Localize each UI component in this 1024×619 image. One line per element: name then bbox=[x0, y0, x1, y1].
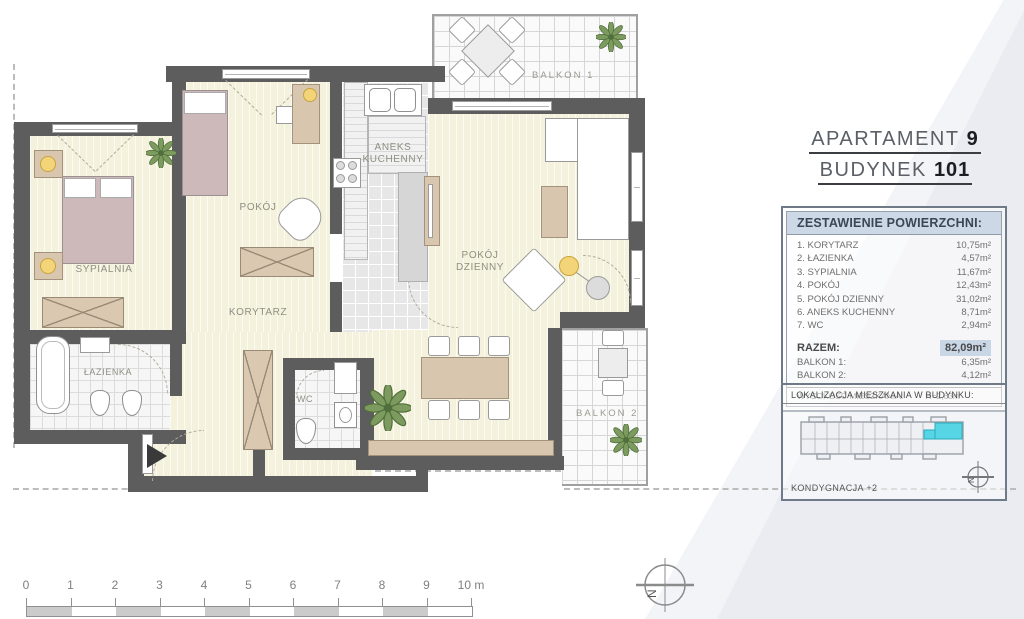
scale-tick bbox=[204, 598, 205, 606]
area-table-title: ZESTAWIENIE POWIERZCHNI: bbox=[787, 212, 1001, 235]
bathtub bbox=[36, 336, 70, 414]
north-compass-icon: N bbox=[634, 554, 696, 616]
balcony-row: BALKON 2:4,12m² bbox=[787, 369, 1001, 382]
scale-segment bbox=[294, 607, 339, 616]
bed-pillow bbox=[184, 92, 226, 114]
wall-segment bbox=[170, 344, 182, 396]
dining-chair bbox=[458, 336, 480, 356]
room-label-balkon2: BALKON 2 bbox=[576, 408, 638, 419]
plant-icon bbox=[596, 22, 626, 52]
balcony1-door-window bbox=[452, 101, 552, 111]
scale-label: 5 bbox=[245, 578, 252, 592]
apartment-number: 9 bbox=[967, 128, 979, 150]
wardrobe bbox=[42, 297, 124, 328]
scale-segment bbox=[205, 607, 250, 616]
scale-label: 7 bbox=[334, 578, 341, 592]
wardrobe bbox=[240, 247, 314, 277]
scale-tick bbox=[160, 598, 161, 606]
scale-tick bbox=[115, 598, 116, 606]
room-label-lazienka: ŁAZIENKA bbox=[76, 366, 140, 378]
apartment-label: APARTAMENT bbox=[811, 128, 959, 150]
plant-icon bbox=[146, 138, 176, 168]
scale-label: 6 bbox=[290, 578, 297, 592]
svg-text:N: N bbox=[645, 589, 659, 598]
plant-icon bbox=[610, 424, 642, 456]
scale-label: 10 m bbox=[458, 578, 485, 592]
wall-segment bbox=[416, 456, 428, 492]
scale-segment bbox=[428, 607, 473, 616]
side-table-round bbox=[586, 276, 610, 300]
tv-icon bbox=[428, 184, 433, 238]
scale-label: 2 bbox=[112, 578, 119, 592]
burner-icon bbox=[336, 161, 345, 170]
building-number: 101 bbox=[934, 159, 970, 181]
lamp-icon bbox=[40, 258, 56, 274]
bathroom-sink bbox=[80, 337, 110, 353]
balcony-row: BALKON 1:6,35m² bbox=[787, 356, 1001, 369]
area-total-row: RAZEM: 82,09m² bbox=[787, 340, 1001, 356]
scale-tick bbox=[427, 598, 428, 606]
building-label: BUDYNEK bbox=[820, 159, 927, 181]
dining-table bbox=[421, 357, 509, 399]
balcony-table bbox=[598, 348, 628, 378]
building-mini-map bbox=[797, 410, 967, 464]
lamp-icon bbox=[40, 156, 56, 172]
balcony-chair bbox=[602, 330, 624, 346]
highlighted-unit bbox=[935, 423, 962, 439]
scale-track bbox=[26, 606, 473, 617]
scale-label: 0 bbox=[23, 578, 30, 592]
location-title: LOKALIZACJA MIESZKANIA W BUDYNKU: bbox=[783, 385, 1005, 404]
scale-tick bbox=[71, 598, 72, 606]
scale-bar: 012345678910 m bbox=[26, 578, 506, 618]
area-row: 5. POKÓJ DZIENNY31,02m² bbox=[787, 293, 1001, 306]
wardrobe bbox=[243, 350, 273, 450]
balcony-chair bbox=[602, 380, 624, 396]
floor-label: KONDYGNACJA +2 bbox=[791, 483, 877, 493]
area-row: 4. POKÓJ12,43m² bbox=[787, 279, 1001, 292]
scale-segment bbox=[161, 607, 206, 616]
low-cabinet bbox=[368, 440, 554, 456]
room-label-pokoj: POKÓJ bbox=[233, 202, 283, 214]
room-label-korytarz: KORYTARZ bbox=[218, 307, 298, 319]
living-window bbox=[631, 152, 643, 222]
area-row: 2. ŁAZIENKA4,57m² bbox=[787, 252, 1001, 265]
area-row: 3. SYPIALNIA11,67m² bbox=[787, 266, 1001, 279]
scale-segment bbox=[72, 607, 117, 616]
balcony2-door bbox=[631, 250, 643, 306]
floor-lamp-icon bbox=[559, 256, 579, 276]
wall-segment bbox=[283, 448, 375, 460]
scale-label: 4 bbox=[201, 578, 208, 592]
area-total-value: 82,09m² bbox=[940, 340, 991, 356]
title-block: APARTAMENT 9 BUDYNEK 101 bbox=[772, 128, 1018, 190]
scale-label: 8 bbox=[379, 578, 386, 592]
dining-chair bbox=[458, 400, 480, 420]
burner-icon bbox=[348, 174, 357, 183]
location-footer: KONDYGNACJA +2 N bbox=[791, 459, 995, 493]
scale-label: 9 bbox=[423, 578, 430, 592]
wall-segment bbox=[14, 430, 186, 444]
scale-segment bbox=[339, 607, 384, 616]
highlighted-unit bbox=[924, 430, 935, 439]
bed-pillow bbox=[64, 178, 96, 198]
pokoj-window bbox=[222, 69, 310, 79]
area-row: 6. ANEKS KUCHENNY8,71m² bbox=[787, 306, 1001, 319]
scale-tick bbox=[338, 598, 339, 606]
scale-label: 3 bbox=[156, 578, 163, 592]
plant-icon bbox=[365, 385, 411, 431]
area-summary-panel: ZESTAWIENIE POWIERZCHNI: 1. KORYTARZ10,7… bbox=[781, 206, 1007, 412]
desk-lamp-icon bbox=[303, 88, 317, 102]
room-label-aneks-kuchenny: ANEKS KUCHENNY bbox=[362, 142, 424, 166]
dining-chair bbox=[428, 400, 450, 420]
wall-segment bbox=[560, 312, 645, 328]
sink-basin bbox=[394, 88, 416, 112]
area-row: 1. KORYTARZ10,75m² bbox=[787, 239, 1001, 252]
wc-sink bbox=[334, 362, 357, 394]
area-summary-inner: ZESTAWIENIE POWIERZCHNI: 1. KORYTARZ10,7… bbox=[786, 211, 1002, 407]
scale-tick bbox=[26, 598, 27, 606]
svg-text:N: N bbox=[967, 477, 976, 483]
scale-label: 1 bbox=[67, 578, 74, 592]
scale-tick bbox=[293, 598, 294, 606]
room-label-pokoj-dzienny: POKÓJ DZIENNY bbox=[450, 250, 510, 274]
apartment-title: APARTAMENT 9 bbox=[772, 128, 1018, 159]
coffee-table bbox=[541, 186, 568, 238]
scale-tick bbox=[249, 598, 250, 606]
location-panel: LOKALIZACJA MIESZKANIA W BUDYNKU: bbox=[781, 383, 1007, 501]
room-label-sypialnia: SYPIALNIA bbox=[64, 264, 144, 276]
scale-tick bbox=[471, 598, 472, 606]
area-total-label: RAZEM: bbox=[797, 340, 840, 356]
burner-icon bbox=[348, 161, 357, 170]
burner-icon bbox=[336, 174, 345, 183]
area-row: 7. WC2,94m² bbox=[787, 319, 1001, 332]
wall-segment bbox=[14, 122, 30, 332]
wall-segment bbox=[283, 358, 295, 460]
room-label-wc: WC bbox=[292, 393, 318, 405]
room-label-balkon1: BALKON 1 bbox=[532, 70, 594, 81]
bed-pillow bbox=[100, 178, 132, 198]
panel-compass-icon: N bbox=[961, 459, 995, 493]
washing-machine bbox=[334, 402, 357, 428]
wall-segment bbox=[14, 344, 30, 444]
sink-basin bbox=[369, 88, 391, 112]
sypialnia-window bbox=[52, 124, 138, 133]
area-table-rows: 1. KORYTARZ10,75m²2. ŁAZIENKA4,57m²3. SY… bbox=[787, 235, 1001, 333]
entrance-arrow bbox=[147, 444, 167, 468]
dining-chair bbox=[488, 400, 510, 420]
wall-segment bbox=[548, 328, 562, 458]
wall-segment bbox=[356, 456, 564, 470]
corner-sofa bbox=[577, 118, 629, 240]
floor-plan-page: SYPIALNIA POKÓJ KORYTARZ ŁAZIENKA WC ANE… bbox=[0, 0, 1024, 619]
scale-segment bbox=[383, 607, 428, 616]
wall-segment bbox=[332, 66, 445, 82]
dining-chair bbox=[488, 336, 510, 356]
balcony-rows: BALKON 1:6,35m²BALKON 2:4,12m² bbox=[787, 356, 1001, 383]
scale-tick bbox=[382, 598, 383, 606]
dining-chair bbox=[428, 336, 450, 356]
building-title: BUDYNEK 101 bbox=[772, 159, 1018, 190]
wall-segment bbox=[330, 282, 342, 332]
scale-segment bbox=[116, 607, 161, 616]
scale-segment bbox=[27, 607, 72, 616]
scale-segment bbox=[250, 607, 295, 616]
